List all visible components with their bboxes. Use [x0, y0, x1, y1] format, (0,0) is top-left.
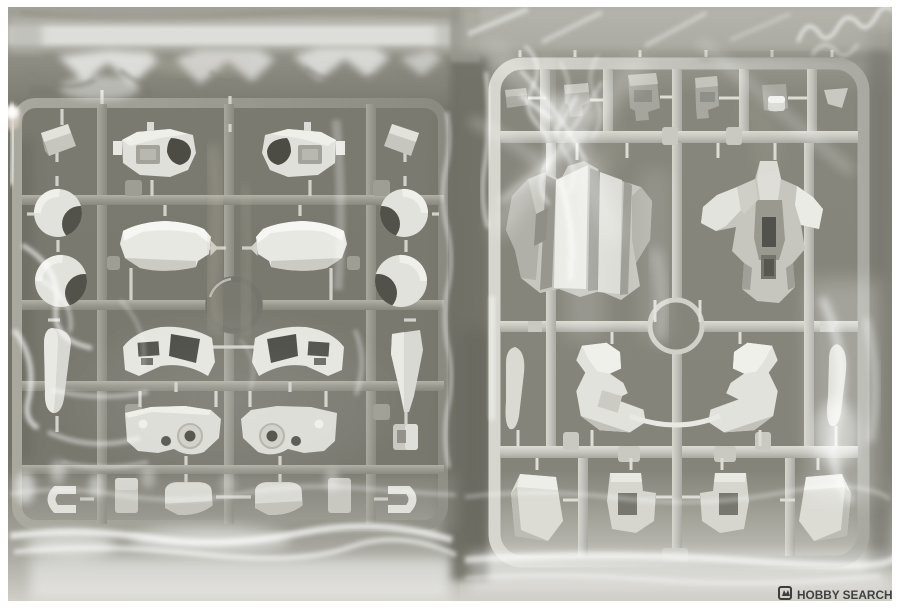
- svg-text:HOBBY SEARCH: HOBBY SEARCH: [797, 588, 892, 602]
